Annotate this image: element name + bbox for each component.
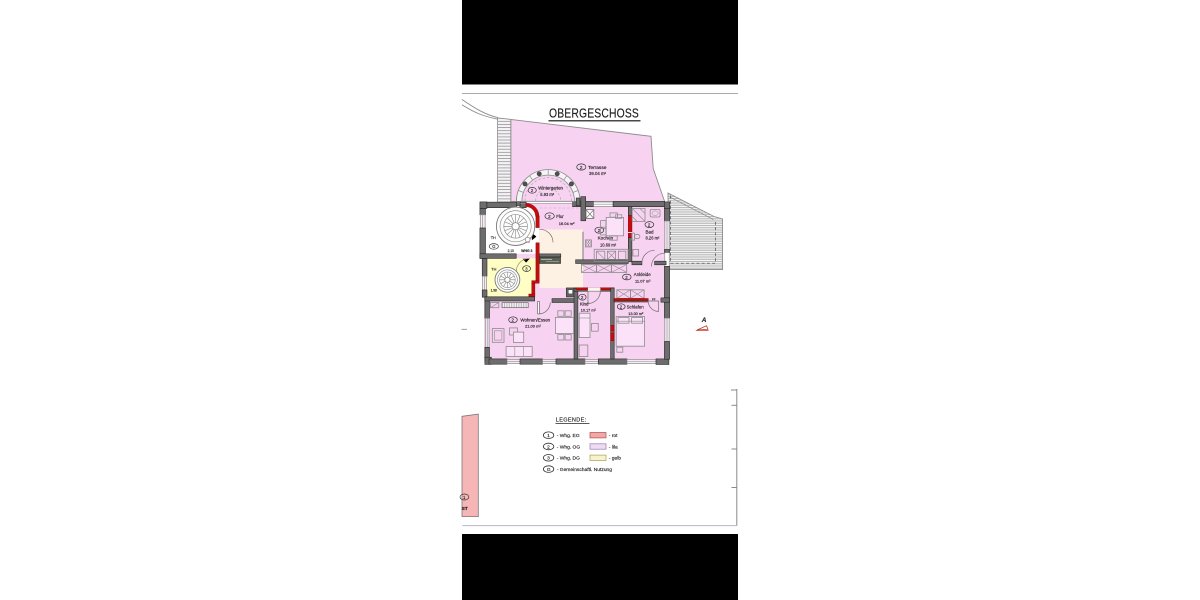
- svg-text:11.07 m²: 11.07 m²: [635, 279, 651, 284]
- svg-text:- Whg. DG: - Whg. DG: [557, 456, 580, 462]
- svg-text:- Gemeinschaftl. Nutzung: - Gemeinschaftl. Nutzung: [557, 467, 612, 473]
- svg-text:5.93 m²: 5.93 m²: [540, 192, 555, 197]
- svg-text:- gelb: - gelb: [609, 456, 622, 462]
- svg-text:10.69 m²: 10.69 m²: [600, 242, 617, 247]
- svg-text:Wohnen/Essen: Wohnen/Essen: [520, 318, 550, 323]
- svg-text:- lila: - lila: [609, 444, 618, 450]
- svg-text:Kind: Kind: [580, 301, 589, 306]
- svg-text:WHG 3: WHG 3: [521, 249, 532, 253]
- svg-text:16.04 m²: 16.04 m²: [559, 221, 575, 226]
- svg-text:2.10: 2.10: [508, 249, 514, 253]
- svg-text:ST: ST: [462, 506, 468, 512]
- svg-text:Bad: Bad: [646, 229, 655, 234]
- svg-text:39.04 m²: 39.04 m²: [589, 171, 607, 176]
- svg-text:8.26 m²: 8.26 m²: [646, 236, 661, 241]
- svg-text:FF: FF: [652, 297, 656, 301]
- svg-text:G: G: [492, 244, 495, 249]
- svg-text:TH: TH: [491, 236, 496, 240]
- svg-text:- Whg. OG: - Whg. OG: [557, 444, 581, 450]
- svg-text:LEGENDE:: LEGENDE:: [556, 417, 587, 423]
- svg-text:- Whg. EG: - Whg. EG: [557, 433, 580, 439]
- svg-text:1: 1: [547, 433, 550, 439]
- svg-text:Schlafen: Schlafen: [627, 305, 645, 310]
- svg-text:G: G: [547, 467, 551, 473]
- svg-text:Wintergarten: Wintergarten: [538, 186, 563, 191]
- svg-text:10.17 m²: 10.17 m²: [581, 309, 597, 313]
- svg-text:TH: TH: [491, 268, 496, 272]
- svg-text:Flur: Flur: [556, 214, 564, 219]
- svg-text:2: 2: [547, 444, 550, 450]
- svg-text:OBERGESCHOSS: OBERGESCHOSS: [549, 106, 639, 121]
- svg-text:A: A: [701, 317, 707, 324]
- svg-text:21.00 m²: 21.00 m²: [525, 324, 541, 329]
- svg-text:- rot: - rot: [609, 433, 618, 439]
- svg-text:2: 2: [548, 214, 551, 219]
- svg-text:3: 3: [547, 456, 550, 462]
- svg-text:13.00 m²: 13.00 m²: [628, 312, 644, 316]
- svg-text:2: 2: [580, 165, 583, 170]
- svg-text:Ankleide: Ankleide: [634, 272, 651, 277]
- svg-text:1.98: 1.98: [491, 289, 497, 293]
